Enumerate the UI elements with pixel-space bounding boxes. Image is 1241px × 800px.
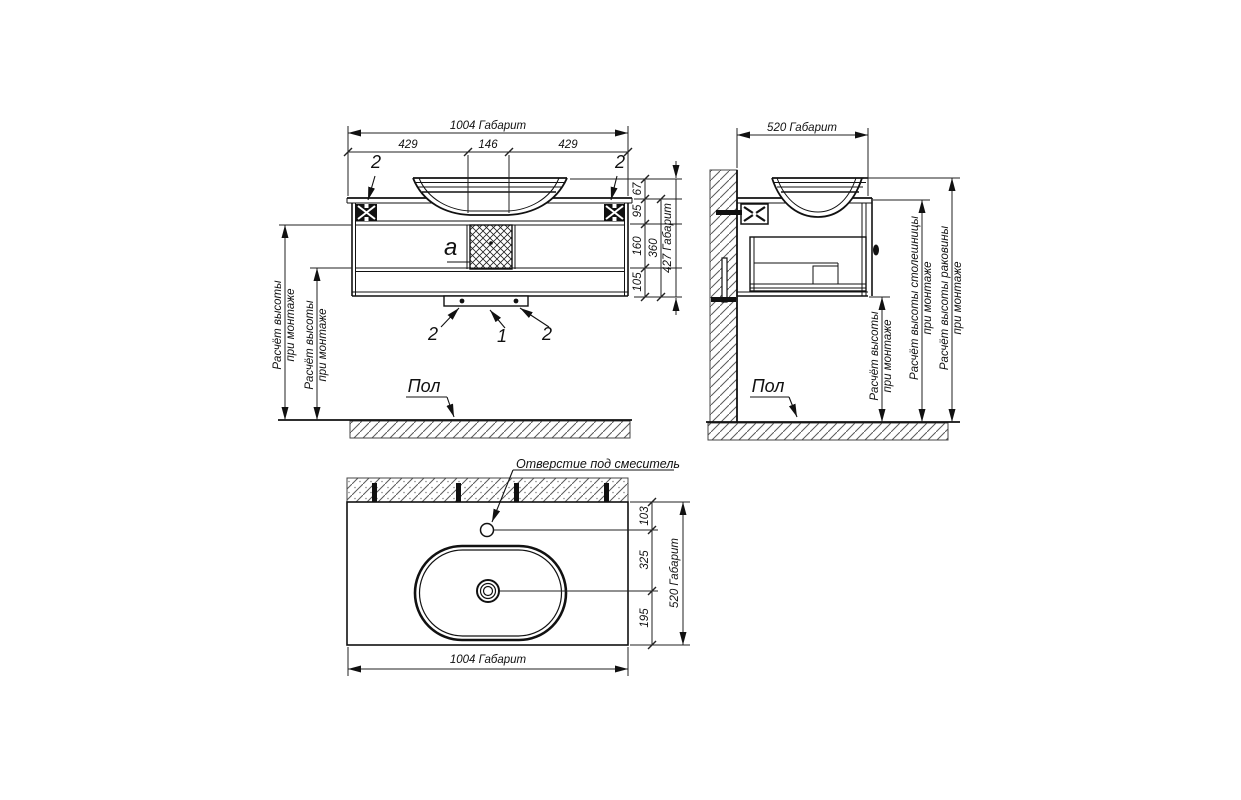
front-dim-total-width: 1004 Габарит	[443, 119, 533, 133]
plan-dim-total-width: 1004 Габарит	[443, 653, 533, 667]
front-bracket-right	[604, 204, 625, 221]
bottom-plate	[444, 296, 528, 306]
callout-bottom-center: 1	[492, 325, 512, 347]
callout-bracket-left: 2	[366, 151, 386, 173]
side-note-sink-line2: при монтаже	[952, 203, 965, 393]
plan-dim-total-depth: 520 Габарит	[668, 528, 682, 618]
faucet-hole-label: Отверстие под смеситель	[516, 457, 680, 471]
side-note-sink-height: Расчёт высоты раковины при монтаже	[939, 203, 965, 393]
side-sink-bowl	[772, 178, 868, 217]
side-floor-label: Пол	[746, 375, 790, 397]
side-note-countertop-line2: при монтаже	[922, 203, 935, 393]
callout-bottom-right: 2	[537, 323, 557, 345]
side-floor	[706, 422, 960, 440]
section-a-label: a	[444, 234, 457, 262]
side-note-sink-line1: Расчёт высоты раковины	[939, 203, 952, 393]
drawing-linework	[0, 0, 1241, 800]
wall-plate	[722, 258, 727, 302]
wall-bolt-top	[716, 210, 742, 215]
front-height-note-1-line1: Расчёт высоты	[272, 230, 285, 420]
front-dim-105: 105	[631, 252, 645, 312]
side-drawer	[750, 237, 866, 291]
plan-dim-195: 195	[638, 588, 652, 648]
plan-countertop	[347, 502, 628, 645]
front-height-note-2-line1: Расчёт высоты	[304, 250, 317, 440]
wall-bolt-bottom	[711, 297, 736, 302]
front-floor	[278, 420, 632, 438]
front-height-note-1-line2: при монтаже	[285, 230, 298, 420]
side-note-cabinet-line2: при монтаже	[882, 261, 895, 451]
front-dim-left: 429	[383, 138, 433, 152]
plan-wall-strip	[347, 478, 628, 502]
side-note-cabinet-height: Расчёт высоты при монтаже	[869, 261, 895, 451]
front-height-note-1: Расчёт высоты при монтаже	[272, 230, 298, 420]
side-note-countertop-line1: Расчёт высоты столешницы	[909, 203, 922, 393]
callout-bottom-left: 2	[423, 323, 443, 345]
front-dim-360: 360	[647, 218, 661, 278]
front-dim-center: 146	[463, 138, 513, 152]
front-floor-label: Пол	[402, 375, 446, 397]
front-sink-bowl	[413, 178, 567, 215]
front-bracket-left	[356, 204, 377, 221]
front-height-note-2-line2: при монтаже	[317, 250, 330, 440]
callout-bracket-right: 2	[610, 151, 630, 173]
door-handle	[873, 245, 879, 256]
front-dim-total-height: 427 Габарит	[661, 193, 675, 283]
front-dim-right: 429	[543, 138, 593, 152]
faucet-hole	[481, 524, 494, 537]
technical-drawing-vanity: 1004 Габарит 429 146 429 2 2 a 67 95 160…	[0, 0, 1241, 800]
side-note-countertop-height: Расчёт высоты столешницы при монтаже	[909, 203, 935, 393]
front-height-note-2: Расчёт высоты при монтаже	[304, 250, 330, 440]
side-dim-total-depth: 520 Габарит	[757, 121, 847, 135]
side-leaders	[750, 397, 797, 417]
side-note-cabinet-line1: Расчёт высоты	[869, 261, 882, 451]
plan-dim-325: 325	[638, 530, 652, 590]
